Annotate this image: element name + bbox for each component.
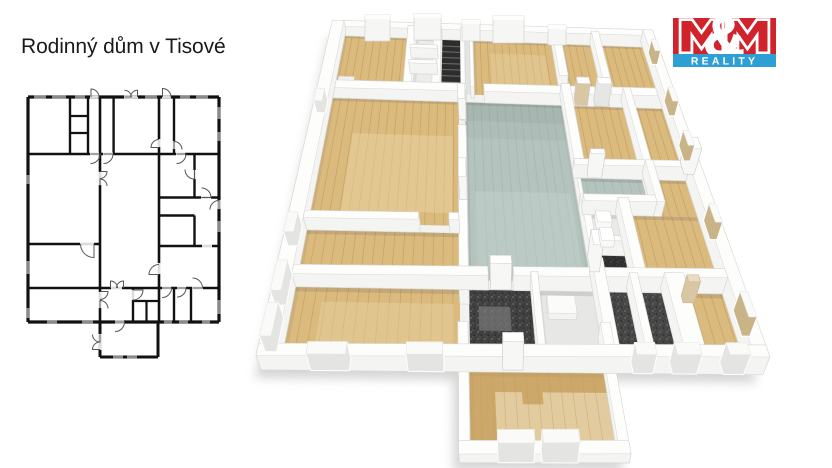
svg-text:REALITY: REALITY bbox=[691, 56, 758, 68]
svg-text:Rodinný dům v Tisové: Rodinný dům v Tisové bbox=[21, 35, 226, 58]
